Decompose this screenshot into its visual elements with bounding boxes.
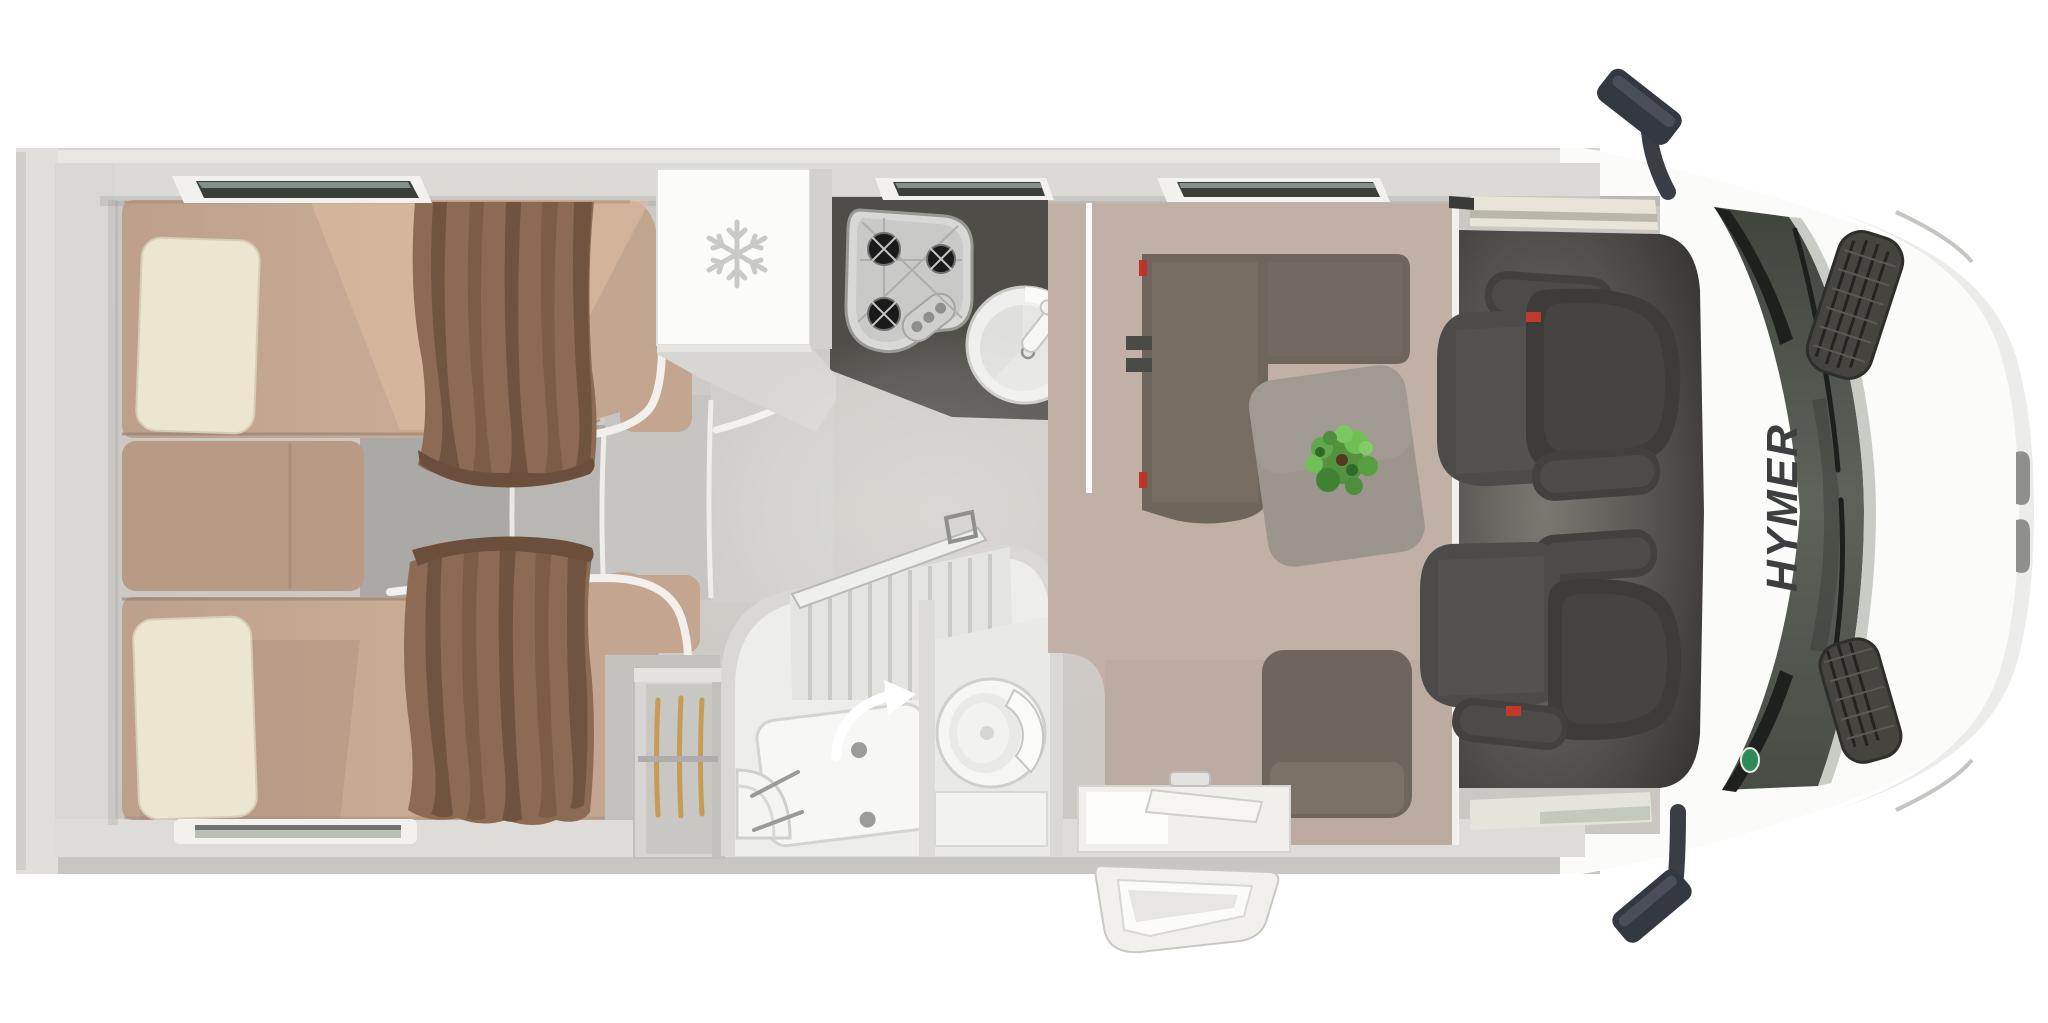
svg-text:HYMER: HYMER bbox=[1758, 423, 1807, 592]
